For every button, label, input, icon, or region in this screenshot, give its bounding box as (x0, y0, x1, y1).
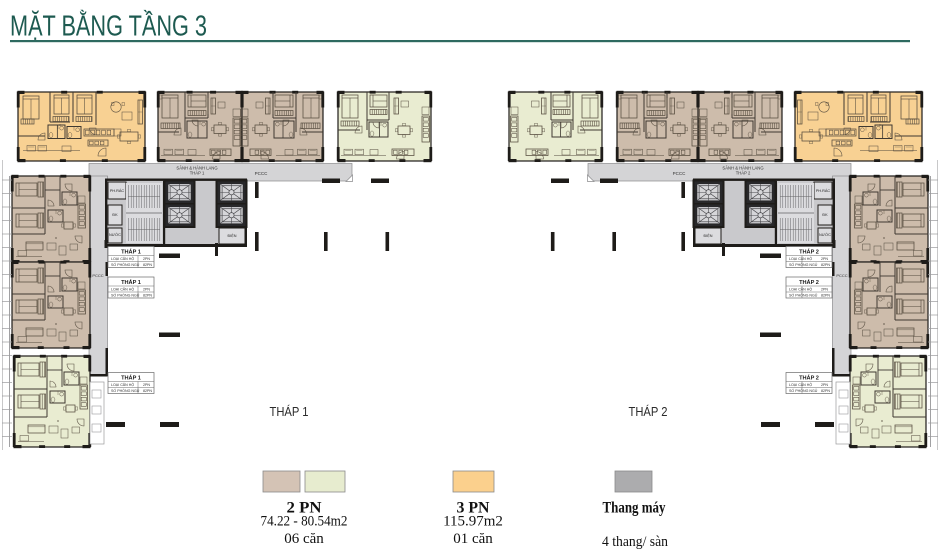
svg-text:82PN: 82PN (143, 294, 152, 298)
svg-text:LOẠI CĂN HỘ: LOẠI CĂN HỘ (111, 287, 134, 292)
svg-text:MẶT BẰNG TẦNG 3: MẶT BẰNG TẦNG 3 (10, 11, 207, 43)
svg-text:06 căn: 06 căn (284, 531, 324, 547)
svg-text:LOẠI CĂN HỘ: LOẠI CĂN HỘ (111, 382, 134, 387)
svg-text:THÁP 1: THÁP 1 (121, 279, 141, 286)
svg-text:82PN: 82PN (143, 389, 152, 393)
svg-text:82PN: 82PN (143, 263, 152, 267)
svg-text:THÁP 2: THÁP 2 (799, 279, 819, 286)
svg-text:SỐ PHÒNG NGỦ: SỐ PHÒNG NGỦ (789, 262, 818, 267)
svg-text:PCCC: PCCC (836, 273, 847, 278)
svg-text:PCCC: PCCC (673, 171, 687, 176)
svg-text:74.22 - 80.54m2: 74.22 - 80.54m2 (261, 514, 348, 530)
svg-text:82PN: 82PN (821, 389, 830, 393)
svg-text:PCCC: PCCC (255, 171, 269, 176)
svg-text:2PN: 2PN (143, 288, 150, 292)
svg-text:SỐ PHÒNG NGỦ: SỐ PHÒNG NGỦ (789, 388, 818, 393)
svg-text:2PN: 2PN (143, 257, 150, 261)
svg-text:PCCC: PCCC (92, 273, 103, 278)
svg-text:NƯỚC: NƯỚC (109, 232, 121, 237)
svg-text:2PN: 2PN (143, 383, 150, 387)
svg-text:THÁP 2: THÁP 2 (629, 404, 668, 419)
svg-text:THÁP 1: THÁP 1 (190, 171, 205, 176)
svg-text:SỐ PHÒNG NGỦ: SỐ PHÒNG NGỦ (111, 388, 140, 393)
svg-text:2PN: 2PN (821, 257, 828, 261)
svg-text:THÁP 1: THÁP 1 (121, 375, 141, 382)
svg-text:THÁP 2: THÁP 2 (736, 171, 751, 176)
svg-text:4 thang/ sàn: 4 thang/ sàn (602, 534, 668, 550)
svg-text:PH.RÁC: PH.RÁC (816, 189, 831, 193)
svg-text:LOẠI CĂN HỘ: LOẠI CĂN HỘ (789, 382, 812, 387)
svg-text:01 căn: 01 căn (453, 531, 493, 547)
svg-text:THÁP 2: THÁP 2 (799, 375, 819, 382)
svg-text:SỐ PHÒNG NGỦ: SỐ PHÒNG NGỦ (789, 293, 818, 298)
svg-text:Thang máy: Thang máy (603, 500, 666, 517)
svg-text:2PN: 2PN (821, 383, 828, 387)
svg-text:ĐIỆN: ĐIỆN (703, 233, 712, 238)
svg-text:82PN: 82PN (821, 294, 830, 298)
svg-text:ĐK: ĐK (112, 213, 118, 217)
svg-text:LOẠI CĂN HỘ: LOẠI CĂN HỘ (789, 287, 812, 292)
svg-text:ĐIỆN: ĐIỆN (227, 233, 236, 238)
svg-text:SỐ PHÒNG NGỦ: SỐ PHÒNG NGỦ (111, 293, 140, 298)
svg-text:SỐ PHÒNG NGỦ: SỐ PHÒNG NGỦ (111, 262, 140, 267)
svg-text:115.97m2: 115.97m2 (443, 514, 503, 530)
svg-text:LOẠI CĂN HỘ: LOẠI CĂN HỘ (111, 256, 134, 261)
svg-text:LOẠI CĂN HỘ: LOẠI CĂN HỘ (789, 256, 812, 261)
svg-text:82PN: 82PN (821, 263, 830, 267)
svg-text:THÁP 1: THÁP 1 (121, 249, 141, 256)
svg-text:2PN: 2PN (821, 288, 828, 292)
svg-text:THÁP 2: THÁP 2 (799, 249, 819, 256)
svg-text:NƯỚC: NƯỚC (819, 232, 831, 237)
svg-text:THÁP 1: THÁP 1 (270, 404, 309, 419)
svg-text:PH.RÁC: PH.RÁC (110, 189, 125, 193)
svg-text:ĐK: ĐK (822, 213, 828, 217)
